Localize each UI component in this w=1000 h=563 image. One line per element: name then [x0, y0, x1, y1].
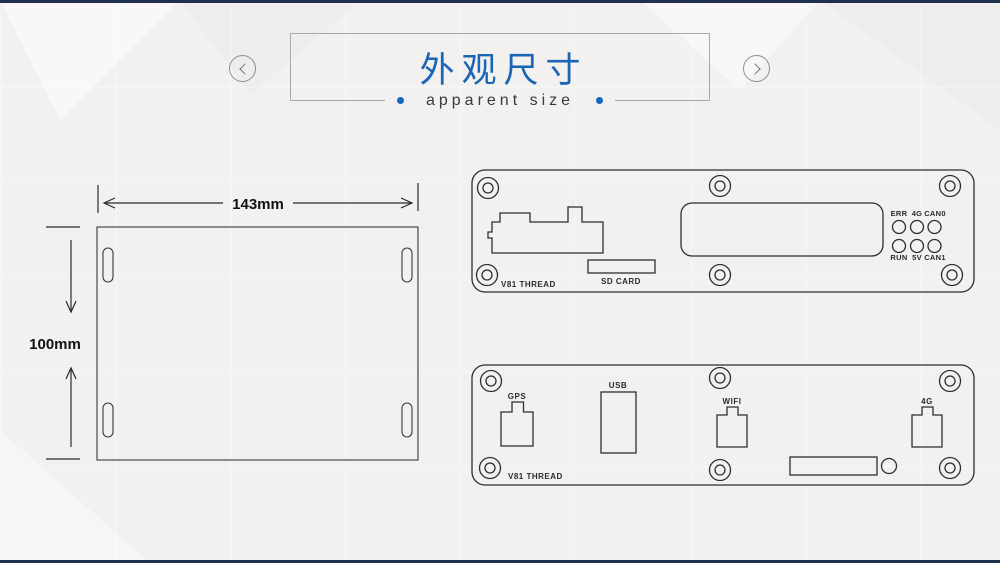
sd-card-slot [588, 260, 655, 273]
screw-hole-icon [715, 181, 725, 191]
rear-panel-drawing: GPS USB WIFI 4G V81 THREAD [465, 358, 980, 490]
led-icon [911, 221, 924, 234]
screw-hole-icon [477, 265, 498, 286]
wifi-label: WIFI [723, 397, 742, 406]
screw-hole-icon [947, 270, 957, 280]
screw-hole-icon [480, 458, 501, 479]
led-icon [928, 240, 941, 253]
screw-hole-icon [715, 270, 725, 280]
led-label-err: ERR [891, 209, 908, 218]
thread-label: V81 THREAD [508, 472, 563, 481]
divider-line-left [290, 100, 385, 101]
screw-holes [480, 368, 961, 481]
usb-port [601, 392, 636, 453]
mounting-slot [103, 403, 113, 437]
width-dimension-label: 143mm [232, 196, 284, 213]
gps-label: GPS [508, 392, 527, 401]
screw-hole-icon [940, 371, 961, 392]
io-slot-cutout [790, 457, 877, 475]
dot-icon [596, 97, 603, 104]
screw-hole-icon [481, 371, 502, 392]
thread-label: V81 THREAD [501, 280, 556, 289]
led-label-run: RUN [890, 253, 907, 262]
screw-hole-icon [485, 463, 495, 473]
section-subtitle-row: apparent size [290, 93, 710, 108]
next-section-button[interactable] [743, 55, 770, 82]
mounting-slot [402, 248, 412, 282]
sd-card-label: SD CARD [601, 277, 641, 286]
led-indicators: ERR 4G CAN0 RUN 5V CAN1 [890, 209, 945, 262]
panel-outline [472, 170, 974, 292]
led-label-can0: CAN0 [924, 209, 946, 218]
panel-outline [472, 365, 974, 485]
led-label-4g: 4G [912, 209, 923, 218]
screw-hole-icon [715, 465, 725, 475]
height-dimension-label: 100mm [29, 336, 81, 353]
front-panel-drawing: SD CARD V81 THREAD ERR 4G CAN0 RUN 5V CA… [465, 163, 980, 295]
section-title-box: 外观尺寸 [290, 33, 710, 100]
mounting-slot [103, 248, 113, 282]
led-label-can1: CAN1 [924, 253, 946, 262]
mounting-slot [402, 403, 412, 437]
power-connector-hole [882, 459, 897, 474]
screw-hole-icon [483, 183, 493, 193]
enclosure-outline [97, 227, 418, 460]
page-title: 外观尺寸 [412, 42, 587, 93]
screw-hole-icon [478, 178, 499, 199]
led-label-5v: 5V [912, 253, 922, 262]
wifi-antenna-connector [717, 407, 747, 447]
display-window-cutout [681, 203, 883, 256]
screw-hole-icon [945, 376, 955, 386]
4g-antenna-connector [912, 407, 942, 447]
terminal-connector-cutout [488, 207, 603, 253]
usb-label: USB [609, 381, 627, 390]
gps-antenna-connector [501, 402, 533, 446]
facet [0, 0, 180, 120]
prev-section-button[interactable] [229, 55, 256, 82]
screw-hole-icon [945, 463, 955, 473]
page-subtitle: apparent size [416, 92, 584, 110]
led-icon [893, 240, 906, 253]
screw-hole-icon [482, 270, 492, 280]
led-icon [928, 221, 941, 234]
chevron-right-icon [749, 63, 760, 74]
divider-line-right [615, 100, 710, 101]
led-icon [893, 221, 906, 234]
screw-hole-icon [486, 376, 496, 386]
dot-icon [397, 97, 404, 104]
screw-hole-icon [710, 368, 731, 389]
facet [820, 0, 1000, 130]
top-edge-bar [0, 0, 1000, 3]
screw-hole-icon [710, 176, 731, 197]
led-icon [911, 240, 924, 253]
chevron-left-icon [239, 63, 250, 74]
screw-hole-icon [942, 265, 963, 286]
4g-label: 4G [921, 397, 933, 406]
page: 外观尺寸 apparent size 143mm 100mm [0, 0, 1000, 563]
screw-hole-icon [945, 181, 955, 191]
top-view-drawing: 143mm 100mm [30, 170, 450, 470]
screw-hole-icon [710, 265, 731, 286]
screw-holes [477, 176, 963, 286]
screw-hole-icon [715, 373, 725, 383]
screw-hole-icon [710, 460, 731, 481]
screw-hole-icon [940, 176, 961, 197]
screw-hole-icon [940, 458, 961, 479]
